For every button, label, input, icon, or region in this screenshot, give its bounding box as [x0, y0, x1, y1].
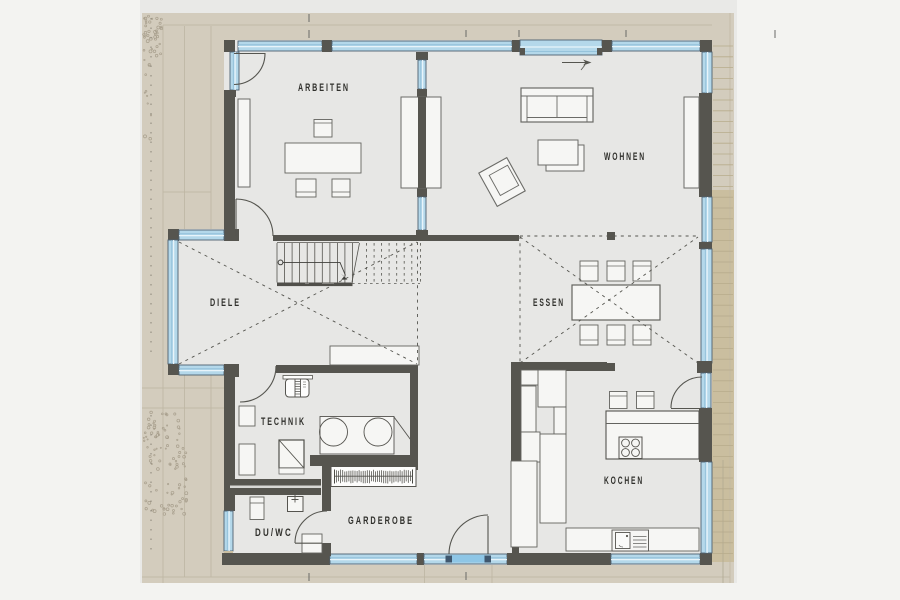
svg-text:TECHNIK: TECHNIK [261, 416, 306, 428]
svg-text:DU/WC: DU/WC [255, 527, 293, 539]
svg-text:ARBEITEN: ARBEITEN [298, 82, 350, 94]
svg-text:DIELE: DIELE [210, 297, 241, 309]
svg-text:GARDEROBE: GARDEROBE [348, 515, 414, 527]
svg-text:WOHNEN: WOHNEN [604, 151, 646, 163]
svg-text:ESSEN: ESSEN [533, 297, 565, 309]
svg-text:KOCHEN: KOCHEN [604, 475, 644, 487]
